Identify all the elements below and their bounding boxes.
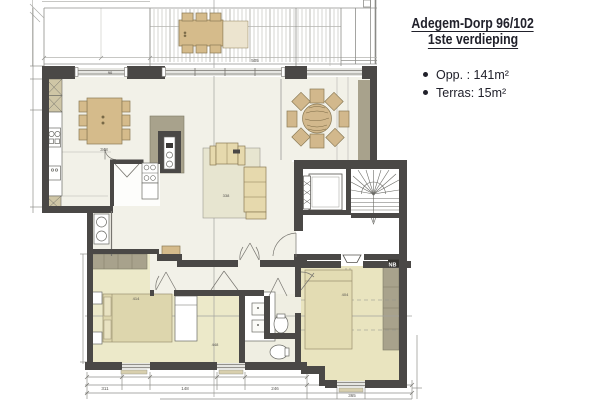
svg-text:404: 404 [342,292,349,297]
svg-text:414: 414 [133,296,140,301]
svg-text:311: 311 [101,386,109,391]
svg-text:246: 246 [271,386,279,391]
svg-text:NB: NB [389,263,397,269]
svg-text:365: 365 [348,393,356,398]
svg-text:338: 338 [223,193,230,198]
svg-text:148: 148 [181,386,189,391]
svg-text:505: 505 [251,58,259,63]
svg-text:90: 90 [108,70,113,75]
svg-text:448: 448 [212,342,219,347]
svg-text:348: 348 [100,147,108,152]
